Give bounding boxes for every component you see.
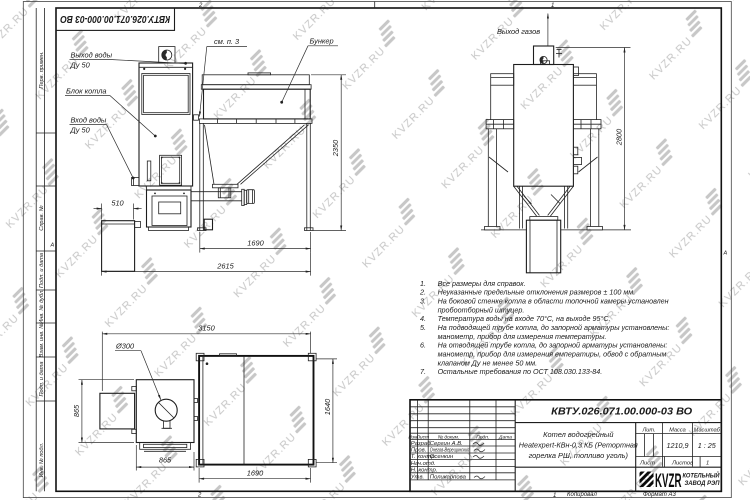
svg-text:Перв. примен.: Перв. примен. <box>39 51 45 88</box>
svg-text:Все размеры для справок.: Все размеры для справок. <box>438 279 526 288</box>
svg-text:горелка РШ, топливо уголь): горелка РШ, топливо уголь) <box>529 451 629 460</box>
svg-text:Взам. инв. №: Взам. инв. № <box>39 323 45 358</box>
svg-text:2: 2 <box>197 493 202 499</box>
svg-text:Ø300: Ø300 <box>115 342 135 351</box>
svg-text:Онегов-Верещинский: Онегов-Верещинский <box>430 446 470 453</box>
svg-text:№ докум.: № докум. <box>438 435 460 441</box>
svg-text:Копировал: Копировал <box>567 492 597 498</box>
svg-text:А: А <box>723 251 728 257</box>
svg-text:Выход воды: Выход воды <box>71 51 113 60</box>
svg-text:865: 865 <box>72 404 81 417</box>
svg-text:Heatexpert-КВн-0,3 КБ (Ретортн: Heatexpert-КВн-0,3 КБ (Ретортная <box>519 441 638 450</box>
svg-text:Масштаб: Масштаб <box>694 428 721 434</box>
svg-text:Подп.: Подп. <box>476 435 489 441</box>
svg-text:1: 1 <box>553 493 556 499</box>
svg-text:Остальные требования по ОСТ 10: Остальные требования по ОСТ 108.030.133-… <box>438 367 603 376</box>
svg-text:манометр, прибор для измерения: манометр, прибор для измерения емператир… <box>438 350 667 359</box>
svg-text:клапаном Ду не менее 50 мм.: клапаном Ду не менее 50 мм. <box>438 358 538 367</box>
svg-text:Выход газов: Выход газов <box>497 27 540 36</box>
svg-text:2: 2 <box>198 3 203 9</box>
svg-text:1: 1 <box>706 460 709 466</box>
svg-text:Утв.: Утв. <box>410 474 424 480</box>
svg-text:2615: 2615 <box>216 261 234 270</box>
svg-text:Справ. №: Справ. № <box>39 205 45 230</box>
svg-text:Листов: Листов <box>671 460 693 466</box>
svg-text:Подп. и дата: Подп. и дата <box>39 253 45 288</box>
svg-text:Лист: Лист <box>639 460 655 466</box>
svg-text:1.: 1. <box>420 279 426 288</box>
svg-text:Подп. и дата: Подп. и дата <box>39 361 45 396</box>
svg-text:5.: 5. <box>420 323 426 332</box>
svg-text:Бункер: Бункер <box>310 37 334 46</box>
svg-text:На подводящей трубе котла, до: На подводящей трубе котла, до запорной а… <box>438 323 670 332</box>
svg-text:Нач.отд.: Нач.отд. <box>411 461 436 467</box>
svg-text:Ду 50: Ду 50 <box>70 61 91 70</box>
svg-text:Лист: Лист <box>416 434 430 440</box>
svg-text:Поликарпова: Поликарпова <box>430 474 467 480</box>
svg-text:Котел водогрейный: Котел водогрейный <box>543 430 613 439</box>
svg-text:2800: 2800 <box>614 128 623 146</box>
svg-text:Н. контр.: Н. контр. <box>411 467 438 473</box>
svg-text:Лит.: Лит. <box>641 428 655 434</box>
svg-text:Температура воды на входе 70°С: Температура воды на входе 70°С, на выход… <box>438 314 611 323</box>
svg-text:А: А <box>50 243 55 249</box>
svg-text:Масса: Масса <box>669 428 686 434</box>
svg-text:КВТУ.026.071.00.000-03 ВО: КВТУ.026.071.00.000-03 ВО <box>60 13 170 24</box>
svg-text:3.: 3. <box>420 297 426 306</box>
svg-text:Формат А3: Формат А3 <box>643 492 676 498</box>
svg-text:6.: 6. <box>420 341 426 350</box>
svg-text:КВТУ.026.071.00.000-03 ВО: КВТУ.026.071.00.000-03 ВО <box>551 406 692 417</box>
svg-text:Инв. № подл.: Инв. № подл. <box>39 443 45 478</box>
svg-text:2350: 2350 <box>331 139 340 157</box>
svg-text:KVZR: KVZR <box>655 470 682 492</box>
svg-text:1 : 25: 1 : 25 <box>698 441 717 450</box>
svg-text:865: 865 <box>159 456 172 465</box>
svg-text:На боковой стенке котла в обла: На боковой стенке котла в области топочн… <box>438 297 669 306</box>
svg-text:3150: 3150 <box>198 324 215 333</box>
svg-text:2.: 2. <box>419 288 426 297</box>
svg-text:1: 1 <box>551 3 554 9</box>
svg-text:Сергин А.В.: Сергин А.В. <box>430 441 463 447</box>
svg-text:На отводящей трубе котла, до з: На отводящей трубе котла, до запорной ар… <box>438 341 668 350</box>
svg-text:КОТЕЛЬНЫЙ: КОТЕЛЬНЫЙ <box>683 472 720 480</box>
svg-text:Дата: Дата <box>498 435 512 441</box>
svg-text:Осенкин: Осенкин <box>430 454 454 460</box>
svg-text:4.: 4. <box>420 314 426 323</box>
svg-text:Неуказанные предельные отклоне: Неуказанные предельные отклонения размер… <box>438 288 636 297</box>
svg-text:ЗАВОД РЭП: ЗАВОД РЭП <box>685 480 721 487</box>
svg-text:1210,9: 1210,9 <box>667 441 689 450</box>
svg-text:Инв. № дубл.: Инв. № дубл. <box>39 289 45 323</box>
svg-text:1690: 1690 <box>247 238 264 247</box>
svg-text:Пров.: Пров. <box>411 447 427 453</box>
svg-text:1640: 1640 <box>323 398 332 415</box>
svg-text:7.: 7. <box>420 367 426 376</box>
svg-text:Вход воды: Вход воды <box>71 116 107 125</box>
svg-text:см. п. 3: см. п. 3 <box>214 37 240 46</box>
svg-text:510: 510 <box>111 199 124 208</box>
svg-text:Ду 50: Ду 50 <box>70 125 91 134</box>
svg-text:1690: 1690 <box>247 468 264 477</box>
svg-text:пробоотборный штуцер.: пробоотборный штуцер. <box>438 305 525 314</box>
svg-text:манометр, прибор для измерения: манометр, прибор для измерения температу… <box>438 332 607 341</box>
svg-text:Блок котла: Блок котла <box>66 87 107 96</box>
